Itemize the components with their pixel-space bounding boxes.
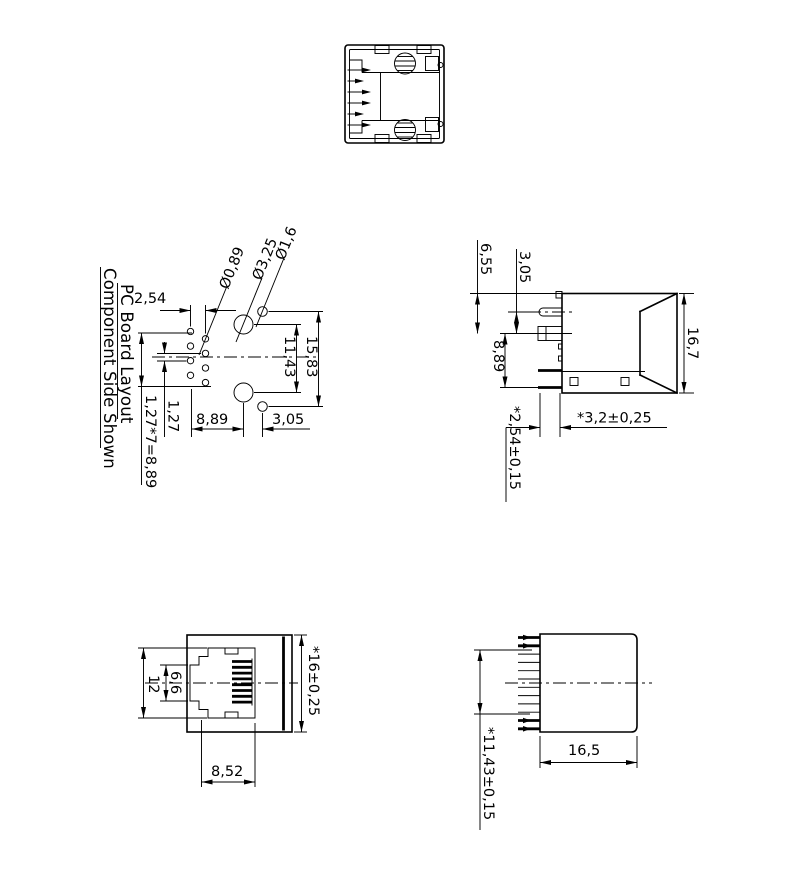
- dim-row-pitch: 1,27: [165, 400, 181, 432]
- front-view: 12 6,6 *16±0,25 8,52: [138, 635, 321, 787]
- technical-drawing-canvas: PC Board Layout Component Side Shown Ø0,…: [0, 0, 790, 872]
- dim-leg-pitch: *2,54±0,15: [506, 406, 522, 490]
- dim-center-to-leg: 8,89: [490, 340, 506, 372]
- drawing-page: PC Board Layout Component Side Shown Ø0,…: [0, 0, 790, 872]
- dim-col-pitch: 2,54: [134, 291, 166, 307]
- dim-opening-depth: 8,52: [211, 764, 243, 780]
- dim-contact-span: *11,43±0,15: [480, 727, 496, 820]
- dim-row-total: 1,27*7=8,89: [142, 395, 158, 488]
- dim-mid-hole-span: 15,83: [303, 336, 319, 378]
- dim-body-height: 16,7: [684, 327, 700, 359]
- dim-latch-width: 6,6: [167, 671, 183, 694]
- dim-tab-to-center: 3,05: [516, 251, 532, 283]
- dim-top-to-center: 6,55: [477, 243, 493, 275]
- rear-view: *11,43±0,15 16,5: [474, 634, 652, 830]
- pcb-mounting-holes: [234, 307, 267, 412]
- dim-body-width: *16±0,25: [305, 646, 321, 716]
- dim-large-hole-span: 11,43: [281, 336, 297, 378]
- dim-leg-length: *3,2±0,25: [577, 411, 652, 427]
- top-view-coil-contacts: [395, 53, 416, 141]
- pcb-layout-view: PC Board Layout Component Side Shown Ø0,…: [100, 225, 323, 489]
- dim-hole-to-hole: 3,05: [272, 412, 304, 428]
- dim-opening-width: 12: [145, 675, 161, 693]
- side-view: 6,55 3,05 8,89 16,7 *3,2±0,25 *2,54±0,15: [470, 240, 700, 502]
- dim-hole-dia-small: Ø0,89: [217, 245, 248, 292]
- dim-body-depth: 16,5: [568, 743, 600, 759]
- top-view-contact-pins: [348, 68, 372, 128]
- dim-row-to-hole: 8,89: [196, 412, 228, 428]
- pcb-pin-holes: [187, 328, 208, 386]
- front-contact-comb: [232, 659, 252, 706]
- top-view: [345, 45, 444, 143]
- pcb-title-line2: Component Side Shown: [100, 268, 119, 469]
